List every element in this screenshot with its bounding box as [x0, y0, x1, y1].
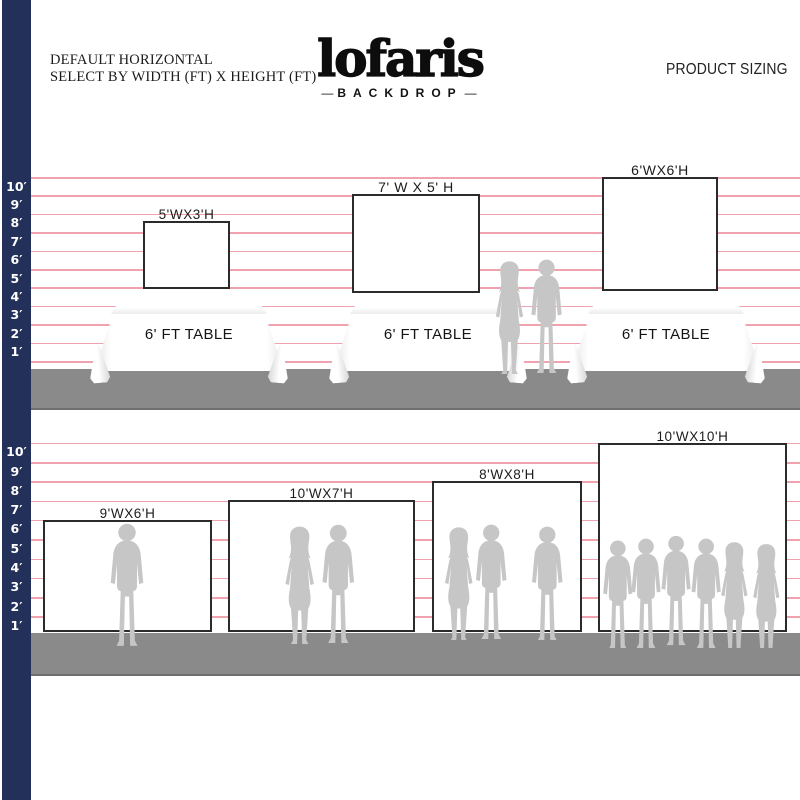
ruler-foot-label: 2′: [2, 326, 31, 341]
ruler-foot-label: 6′: [2, 521, 31, 536]
backdrop-7x5: 7' W X 5' H: [352, 194, 480, 293]
brand-subtitle: —BACKDROP—: [280, 86, 520, 100]
backdrop-size-label: 10'WX10'H: [540, 429, 800, 444]
brand-dash-right: —: [465, 86, 479, 100]
ruler-foot-label: 4′: [2, 560, 31, 575]
table-3: 6' FT TABLE: [571, 299, 761, 389]
table-top-surface: [111, 299, 267, 314]
ruler-foot-label: 5′: [2, 541, 31, 556]
trio-silhouette-8x8: [441, 522, 569, 640]
couple-silhouette-top: [490, 257, 568, 374]
backdrop-size-label: 5'WX3'H: [85, 207, 288, 222]
title-line-1: DEFAULT HORIZONTAL: [50, 52, 316, 69]
group-silhouette-10x10: [599, 530, 787, 648]
ruler-foot-label: 9′: [2, 464, 31, 479]
page-title: DEFAULT HORIZONTAL SELECT BY WIDTH (FT) …: [50, 52, 316, 86]
couple-silhouette-10x7: [280, 522, 360, 644]
ruler-foot-label: 7′: [2, 502, 31, 517]
ruler-rail: 10′9′8′7′6′5′4′3′2′1′10′9′8′7′6′5′4′3′2′…: [2, 0, 31, 800]
brand-logo: lofaris —BACKDROP—: [280, 33, 520, 100]
brand-subtitle-text: BACKDROP: [337, 86, 462, 100]
table-1: 6' FT TABLE: [94, 299, 284, 389]
ruler-foot-label: 10′: [2, 179, 31, 194]
backdrop-size-label: 6'WX6'H: [544, 162, 776, 178]
backdrop-size-label: 7' W X 5' H: [294, 179, 538, 195]
table-label: 6' FT TABLE: [571, 326, 761, 343]
ruler-foot-label: 9′: [2, 197, 31, 212]
backdrop-5x3: 5'WX3'H: [143, 221, 230, 289]
table-top-surface: [588, 299, 744, 314]
ruler-foot-label: 7′: [2, 234, 31, 249]
brand-name: lofaris: [280, 33, 520, 85]
ruler-foot-label: 8′: [2, 483, 31, 498]
ruler-foot-label: 5′: [2, 271, 31, 286]
ruler-foot-label: 4′: [2, 289, 31, 304]
table-top-surface: [350, 299, 506, 314]
title-line-2: SELECT BY WIDTH (FT) X HEIGHT (FT): [50, 69, 316, 86]
ruler-foot-label: 8′: [2, 215, 31, 230]
ruler-foot-label: 2′: [2, 599, 31, 614]
ruler-foot-label: 3′: [2, 307, 31, 322]
ruler-foot-label: 6′: [2, 252, 31, 267]
ruler-foot-label: 3′: [2, 579, 31, 594]
table-label: 6' FT TABLE: [94, 326, 284, 343]
ruler-foot-label: 1′: [2, 618, 31, 633]
man-silhouette-9x6: [106, 522, 148, 648]
product-sizing-label: PRODUCT SIZING: [666, 61, 788, 79]
ruler-foot-label: 1′: [2, 344, 31, 359]
brand-dash-left: —: [321, 86, 335, 100]
ruler-foot-label: 10′: [2, 444, 31, 459]
backdrop-size-label: 10'WX7'H: [170, 486, 473, 501]
backdrop-6x6: 6'WX6'H: [602, 177, 718, 291]
